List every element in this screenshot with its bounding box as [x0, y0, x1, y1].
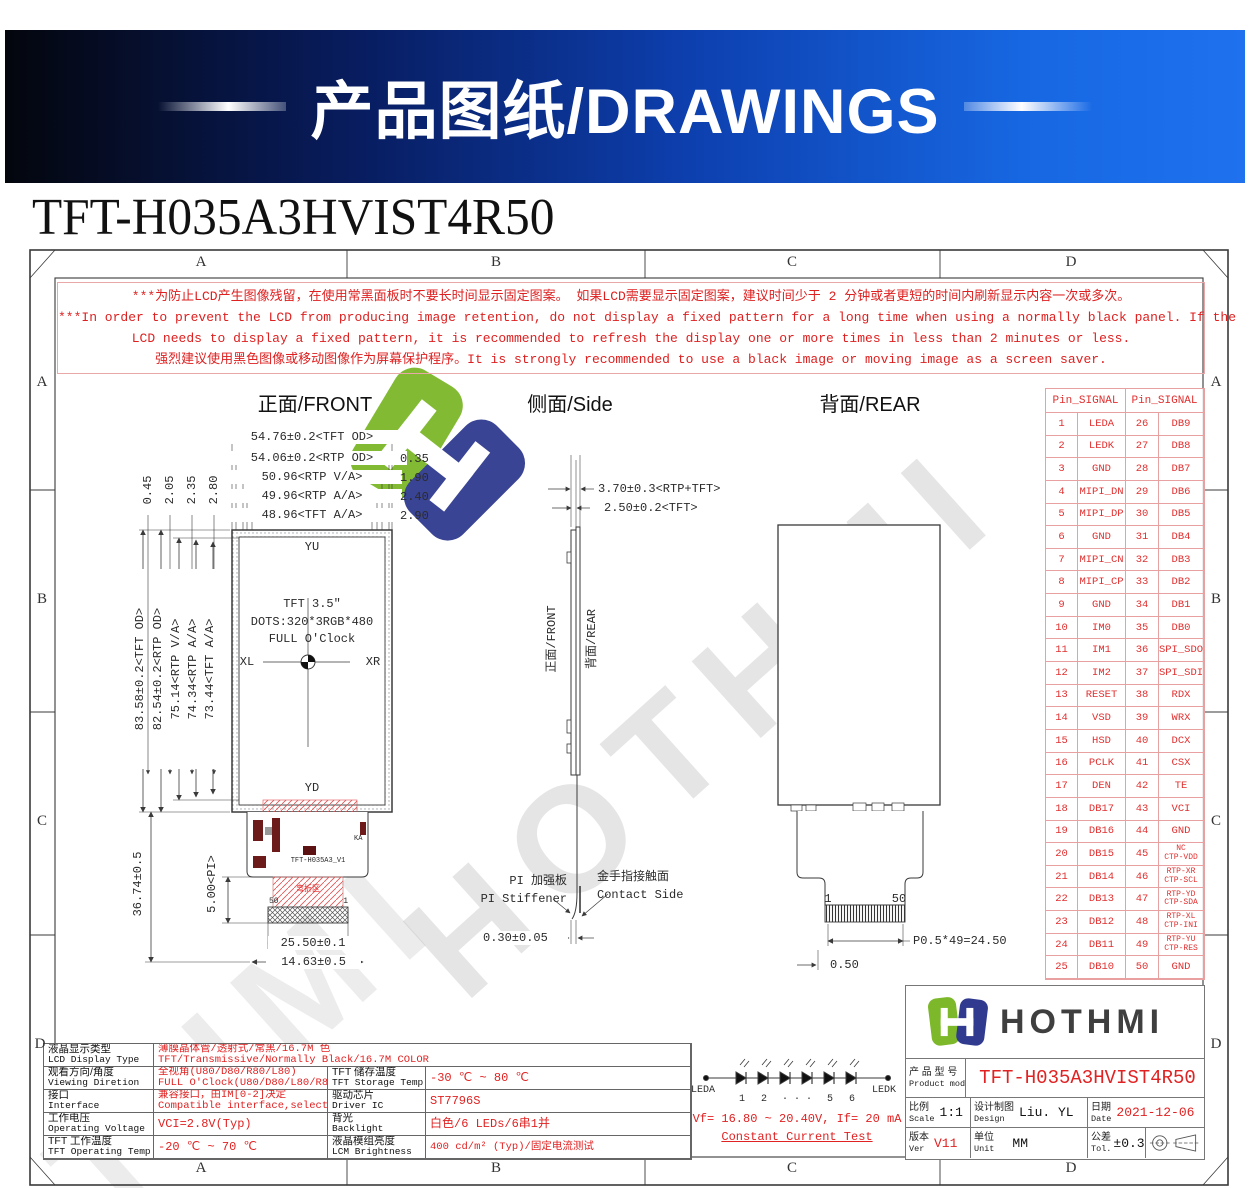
frame-col-top-c: C: [732, 255, 852, 269]
side-contact-en: Contact Side: [597, 888, 712, 902]
spec-table: 液晶显示类型 LCD Display Type 薄膜晶体管/透射式/常黑/16.…: [43, 1043, 692, 1160]
pin-table-cell: DB0: [1159, 617, 1204, 640]
front-vdim-tft-aa: 73.44<TFT A/A>: [203, 569, 217, 769]
pin-table-cell: 18: [1046, 798, 1078, 821]
spec-label: TFT 储存温度 TFT Storage Temp: [328, 1067, 426, 1090]
pin-table-cell: IM2: [1078, 662, 1126, 685]
pin-table-cell: DB4: [1159, 526, 1204, 549]
pin-table-cell: 31: [1126, 526, 1159, 549]
pin-table-cell: MIPI_DP: [1078, 504, 1126, 527]
pin-table-cell: 11: [1046, 639, 1078, 662]
spec-value: 白色/6 LEDs/6串1并: [426, 1113, 691, 1136]
date-cell: 日期 Date 2021-12-06: [1088, 1098, 1204, 1128]
warning-line-1: ***为防止LCD产生图像残留，在使用常黑面板时不要长时间显示固定图案。 如果L…: [58, 286, 1204, 307]
pin-table-cell: DB7: [1159, 458, 1204, 481]
pin-table-cell: 4: [1046, 481, 1078, 504]
rear-pin-last: 50: [888, 892, 910, 906]
pin-table-cell: 9: [1046, 594, 1078, 617]
spec-label: 背光 Backlight: [328, 1113, 426, 1136]
pin-table-cell: 3: [1046, 458, 1078, 481]
pin-table-cell: RDX: [1159, 685, 1204, 708]
fpc-bend-label: 弯折区: [288, 885, 328, 894]
pin-table-cell: 5: [1046, 504, 1078, 527]
pin-table-cell: 25: [1046, 956, 1078, 979]
pin-table-cell: 29: [1126, 481, 1159, 504]
pin-table-cell: PCLK: [1078, 753, 1126, 776]
pin-table-cell: 8: [1046, 571, 1078, 594]
pin-table-cell: RESET: [1078, 685, 1126, 708]
front-vdim-rtp-od: 82.54±0.2<RTP OD>: [151, 569, 165, 769]
frame-col-bottom-b: B: [436, 1161, 556, 1175]
pin-table-header: Pin_SIGNAL: [1046, 389, 1126, 413]
front-center-size: TFT 3.5″: [262, 597, 362, 611]
pin-table-cell: 32: [1126, 549, 1159, 572]
pin-table-cell: 2: [1046, 436, 1078, 459]
fpc-part-number: TFT-H035A3_V1: [278, 857, 358, 865]
pin-table-cell: 27: [1126, 436, 1159, 459]
pin-table-cell: 36: [1126, 639, 1159, 662]
watermark-logo-icon: [319, 342, 550, 571]
pin-table-cell: 6: [1046, 526, 1078, 549]
spec-value: -20 ℃ ~ 70 ℃: [154, 1136, 328, 1159]
front-center-dots: DOTS:320*3RGB*480: [248, 615, 376, 629]
pin-table-cell: 37: [1126, 662, 1159, 685]
front-tick-1: 0.45: [141, 465, 155, 515]
pin-table-cell: DB3: [1159, 549, 1204, 572]
bl-num-2: 2: [756, 1094, 772, 1105]
fpc-pin-1: 1: [334, 897, 348, 906]
front-vdim-tft-od: 83.58±0.2<TFT OD>: [133, 569, 147, 769]
pin-table-cell: 14: [1046, 707, 1078, 730]
pin-table-cell: DB6: [1159, 481, 1204, 504]
front-offset-1: 0.35: [400, 452, 446, 466]
product-model-label: 产 品 型 号 Product model: [906, 1058, 966, 1098]
frame-col-top-d: D: [1011, 255, 1131, 269]
warning-line-4: 强烈建议使用黑色图像或移动图像作为屏幕保护程序。It is strongly r…: [58, 349, 1204, 370]
pin-table-cell: VCI: [1159, 798, 1204, 821]
front-label-xl: XL: [234, 655, 260, 669]
front-offset-2: 1.90: [400, 471, 446, 485]
rear-view-title: 背面/REAR: [790, 394, 950, 416]
spec-label: 接口 Interface: [44, 1090, 154, 1113]
frame-col-bottom-c: C: [732, 1161, 852, 1175]
side-dim-tft: 2.50±0.2<TFT>: [604, 501, 724, 515]
hothmi-logo-icon: [926, 992, 990, 1052]
pin-table-cell: 34: [1126, 594, 1159, 617]
pin-table-cell: 26: [1126, 413, 1159, 436]
pin-table-cell: 39: [1126, 707, 1159, 730]
bl-num-1: 1: [734, 1094, 750, 1105]
pin-table-cell: IM0: [1078, 617, 1126, 640]
unit-cell: 单位 Unit MM: [971, 1128, 1088, 1158]
pin-table-cell: DB5: [1159, 504, 1204, 527]
spec-label: 观看方向/角度 Viewing Diretion: [44, 1067, 154, 1090]
pin-table-cell: GND: [1078, 458, 1126, 481]
pin-table-cell: DB14: [1078, 866, 1126, 889]
side-stiffener-cn: PI 加强板: [462, 874, 567, 888]
frame-col-top-b: B: [436, 255, 556, 269]
side-contact-cn: 金手指接触面: [597, 870, 712, 884]
pin-table-cell: DB12: [1078, 911, 1126, 934]
pin-table-cell: LEDA: [1078, 413, 1126, 436]
side-label-front: 正面/FRONT: [545, 594, 559, 684]
pin-table-cell: 1: [1046, 413, 1078, 436]
pin-table-cell: MIPI_CP: [1078, 571, 1126, 594]
rear-dim-pitch: P0.5*49=24.50: [913, 934, 1028, 948]
version-cell: 版本 Ver V11: [906, 1128, 971, 1158]
pin-table-cell: 47: [1126, 888, 1159, 911]
pin-table-cell: GND: [1159, 821, 1204, 844]
watermark-text: HOTHMI: [372, 410, 1034, 1031]
drawing-sheet-page: 产品图纸/DRAWINGS TFT-H035A3HVIST4R50 HOTHMI…: [0, 0, 1250, 1188]
fpc-dim-width-1: 25.50±0.1: [268, 936, 358, 950]
pin-table-cell: NC CTP-VDD: [1159, 843, 1204, 866]
pin-table-cell: TE: [1159, 775, 1204, 798]
pin-table-cell: DB13: [1078, 888, 1126, 911]
pin-table-cell: MIPI_CN: [1078, 549, 1126, 572]
front-center-clock: FULL O'Clock: [262, 632, 362, 646]
pin-table-cell: 28: [1126, 458, 1159, 481]
spec-value: VCI=2.8V(Typ): [154, 1113, 328, 1136]
front-dim-tft-aa: 48.96<TFT A/A>: [222, 508, 402, 522]
spec-value: 薄膜晶体管/透射式/常黑/16.7M 色 TFT/Transmissive/No…: [154, 1044, 691, 1067]
spec-value: 兼容接口，由IM[0-2]决定 Compatible interface,sel…: [154, 1090, 328, 1113]
pin-table-cell: DB11: [1078, 934, 1126, 957]
bl-num-dots: · · ·: [779, 1094, 815, 1105]
frame-col-bottom-d: D: [1011, 1161, 1131, 1175]
bl-test: Constant Current Test: [690, 1130, 904, 1144]
pin-table-cell: RTP-YU CTP-RES: [1159, 934, 1204, 957]
frame-row-right-c: C: [1204, 814, 1228, 828]
image-retention-warning: ***为防止LCD产生图像残留，在使用常黑面板时不要长时间显示固定图案。 如果L…: [57, 282, 1205, 374]
frame-row-left-c: C: [30, 814, 54, 828]
projection-symbol-icon: [1146, 1128, 1204, 1158]
front-offset-4: 2.90: [400, 509, 446, 523]
front-dim-tft-od: 54.76±0.2<TFT OD>: [217, 430, 407, 444]
pin-table-cell: VSD: [1078, 707, 1126, 730]
pin-table-cell: 13: [1046, 685, 1078, 708]
pin-table-cell: 21: [1046, 866, 1078, 889]
spec-label: 液晶显示类型 LCD Display Type: [44, 1044, 154, 1067]
pin-table-cell: 46: [1126, 866, 1159, 889]
pin-table-cell: 42: [1126, 775, 1159, 798]
banner-dash-right: [964, 102, 1092, 111]
pin-table-cell: DB9: [1159, 413, 1204, 436]
pin-table-cell: 16: [1046, 753, 1078, 776]
rear-dim-offset: 0.50: [830, 958, 880, 972]
warning-line-2: ***In order to prevent the LCD from prod…: [58, 307, 1204, 328]
front-label-xr: XR: [360, 655, 386, 669]
spec-label: TFT 工作温度 TFT Operating Temp: [44, 1136, 154, 1159]
product-model-value: TFT-H035A3HVIST4R50: [966, 1058, 1204, 1098]
pin-table-cell: 7: [1046, 549, 1078, 572]
title-block: HOTHMI 产 品 型 号 Product model TFT-H035A3H…: [905, 985, 1205, 1160]
pin-table-cell: DB15: [1078, 843, 1126, 866]
tolerance-cell: 公差 Tol. ±0.3: [1088, 1128, 1146, 1158]
spec-value: 400 cd/m² (Typ)/固定电流测试: [426, 1136, 691, 1159]
front-vdim-rtp-aa: 74.34<RTP A/A>: [186, 569, 200, 769]
fpc-dim-height: 36.74±0.5: [131, 839, 145, 929]
pin-table-cell: GND: [1159, 956, 1204, 979]
fpc-dim-pi: 5.00<PI>: [205, 844, 219, 924]
side-dim-stiffener: 0.30±0.05: [483, 931, 568, 945]
pin-table-cell: 33: [1126, 571, 1159, 594]
front-offset-3: 2.40: [400, 490, 446, 504]
pin-table-cell: 40: [1126, 730, 1159, 753]
front-tick-2: 2.05: [163, 465, 177, 515]
pin-table-cell: WRX: [1159, 707, 1204, 730]
front-dim-rtp-od: 54.06±0.2<RTP OD>: [217, 451, 407, 465]
pin-table-cell: 49: [1126, 934, 1159, 957]
rear-pin-first: 1: [820, 892, 836, 906]
frame-col-bottom-a: A: [141, 1161, 261, 1175]
frame-row-left-b: B: [30, 592, 54, 606]
frame-row-left-a: A: [30, 375, 54, 389]
pin-table-cell: 20: [1046, 843, 1078, 866]
pin-table-cell: DB16: [1078, 821, 1126, 844]
pin-table-cell: RTP-XL CTP-INI: [1159, 911, 1204, 934]
spec-label: 液晶模组亮度 LCM Brightness: [328, 1136, 426, 1159]
banner: 产品图纸/DRAWINGS: [5, 30, 1245, 183]
pin-table-cell: 12: [1046, 662, 1078, 685]
pin-table-cell: 48: [1126, 911, 1159, 934]
spec-value: 全视角(U80/D80/R80/L80) FULL O'Clock(U80/D8…: [154, 1067, 328, 1090]
pin-table-cell: HSD: [1078, 730, 1126, 753]
pin-table-cell: GND: [1078, 594, 1126, 617]
spec-label: 工作电压 Operating Voltage: [44, 1113, 154, 1136]
front-dim-rtp-aa: 49.96<RTP A/A>: [222, 489, 402, 503]
pin-table-cell: 30: [1126, 504, 1159, 527]
pin-table-cell: DCX: [1159, 730, 1204, 753]
pin-table-header: Pin_SIGNAL: [1126, 389, 1204, 413]
fpc-dim-width-2: 14.63±0.5: [266, 955, 361, 969]
front-view-title: 正面/FRONT: [230, 394, 400, 416]
pin-table-cell: 19: [1046, 821, 1078, 844]
pin-table-cell: DEN: [1078, 775, 1126, 798]
logo-box: HOTHMI: [906, 986, 1204, 1059]
front-tick-3: 2.35: [185, 465, 199, 515]
pin-table-cell: SPI_SDI: [1159, 662, 1204, 685]
pin-table-cell: 17: [1046, 775, 1078, 798]
pin-table-cell: 15: [1046, 730, 1078, 753]
pin-table-cell: DB10: [1078, 956, 1126, 979]
logo-wordmark: HOTHMI: [1000, 1003, 1164, 1042]
side-view-title: 侧面/Side: [500, 394, 640, 416]
fpc-pin-50: 50: [269, 897, 285, 906]
front-dim-rtp-va: 50.96<RTP V/A>: [222, 470, 402, 484]
spec-value: ST7796S: [426, 1090, 691, 1113]
spec-label: 驱动芯片 Driver IC: [328, 1090, 426, 1113]
pin-table-cell: SPI_SDO: [1159, 639, 1204, 662]
pin-table-cell: 41: [1126, 753, 1159, 776]
frame-row-right-a: A: [1204, 375, 1228, 389]
pin-table-cell: MIPI_DN: [1078, 481, 1126, 504]
frame-col-top-a: A: [141, 255, 261, 269]
page-title: TFT-H035A3HVIST4R50: [32, 188, 554, 247]
pin-table-cell: 50: [1126, 956, 1159, 979]
pin-table-cell: 45: [1126, 843, 1159, 866]
banner-dash-left: [158, 102, 286, 111]
pin-table-cell: RTP-XR CTP-SCL: [1159, 866, 1204, 889]
frame-row-right-d: D: [1204, 1037, 1228, 1051]
design-cell: 设计制图 Design Liu. YL: [971, 1098, 1088, 1128]
pin-table-cell: 35: [1126, 617, 1159, 640]
frame-row-right-b: B: [1204, 592, 1228, 606]
spec-value: -30 ℃ ~ 80 ℃: [426, 1067, 691, 1090]
pin-table-cell: DB2: [1159, 571, 1204, 594]
side-stiffener-en: PI Stiffener: [450, 892, 567, 906]
bl-num-6: 6: [844, 1094, 860, 1105]
side-label-rear: 背面/REAR: [585, 594, 599, 684]
pin-table-cell: GND: [1078, 526, 1126, 549]
front-vdim-rtp-va: 75.14<RTP V/A>: [169, 569, 183, 769]
pin-table-cell: 43: [1126, 798, 1159, 821]
banner-title: 产品图纸/DRAWINGS: [310, 61, 939, 152]
pin-table-cell: 38: [1126, 685, 1159, 708]
pin-table-cell: 24: [1046, 934, 1078, 957]
side-dim-total: 3.70±0.3<RTP+TFT>: [598, 482, 748, 496]
pin-table-cell: 44: [1126, 821, 1159, 844]
pin-table-cell: IM1: [1078, 639, 1126, 662]
pin-table-cell: RTP-YD CTP-SDA: [1159, 888, 1204, 911]
pin-table-cell: DB1: [1159, 594, 1204, 617]
pin-table-cell: 22: [1046, 888, 1078, 911]
front-tick-4: 2.80: [207, 465, 221, 515]
pin-table-cell: DB17: [1078, 798, 1126, 821]
front-label-yu: YU: [292, 540, 332, 554]
pin-table-cell: LEDK: [1078, 436, 1126, 459]
pin-signal-table: Pin_SIGNALPin_SIGNAL1LEDA26DB92LEDK27DB8…: [1045, 388, 1205, 980]
bl-label-ledk: LEDK: [866, 1085, 902, 1096]
bl-num-5: 5: [822, 1094, 838, 1105]
bl-spec: Vf= 16.80 ~ 20.40V, If= 20 mA: [690, 1112, 904, 1126]
warning-line-3: LCD needs to display a fixed pattern, it…: [58, 328, 1204, 349]
pin-table-cell: CSX: [1159, 753, 1204, 776]
pin-table-cell: 10: [1046, 617, 1078, 640]
fpc-mark-ka: KA: [354, 835, 376, 843]
scale-cell: 比例 Scale 1:1: [906, 1098, 971, 1128]
pin-table-cell: 23: [1046, 911, 1078, 934]
front-label-yd: YD: [292, 781, 332, 795]
pin-table-cell: DB8: [1159, 436, 1204, 459]
